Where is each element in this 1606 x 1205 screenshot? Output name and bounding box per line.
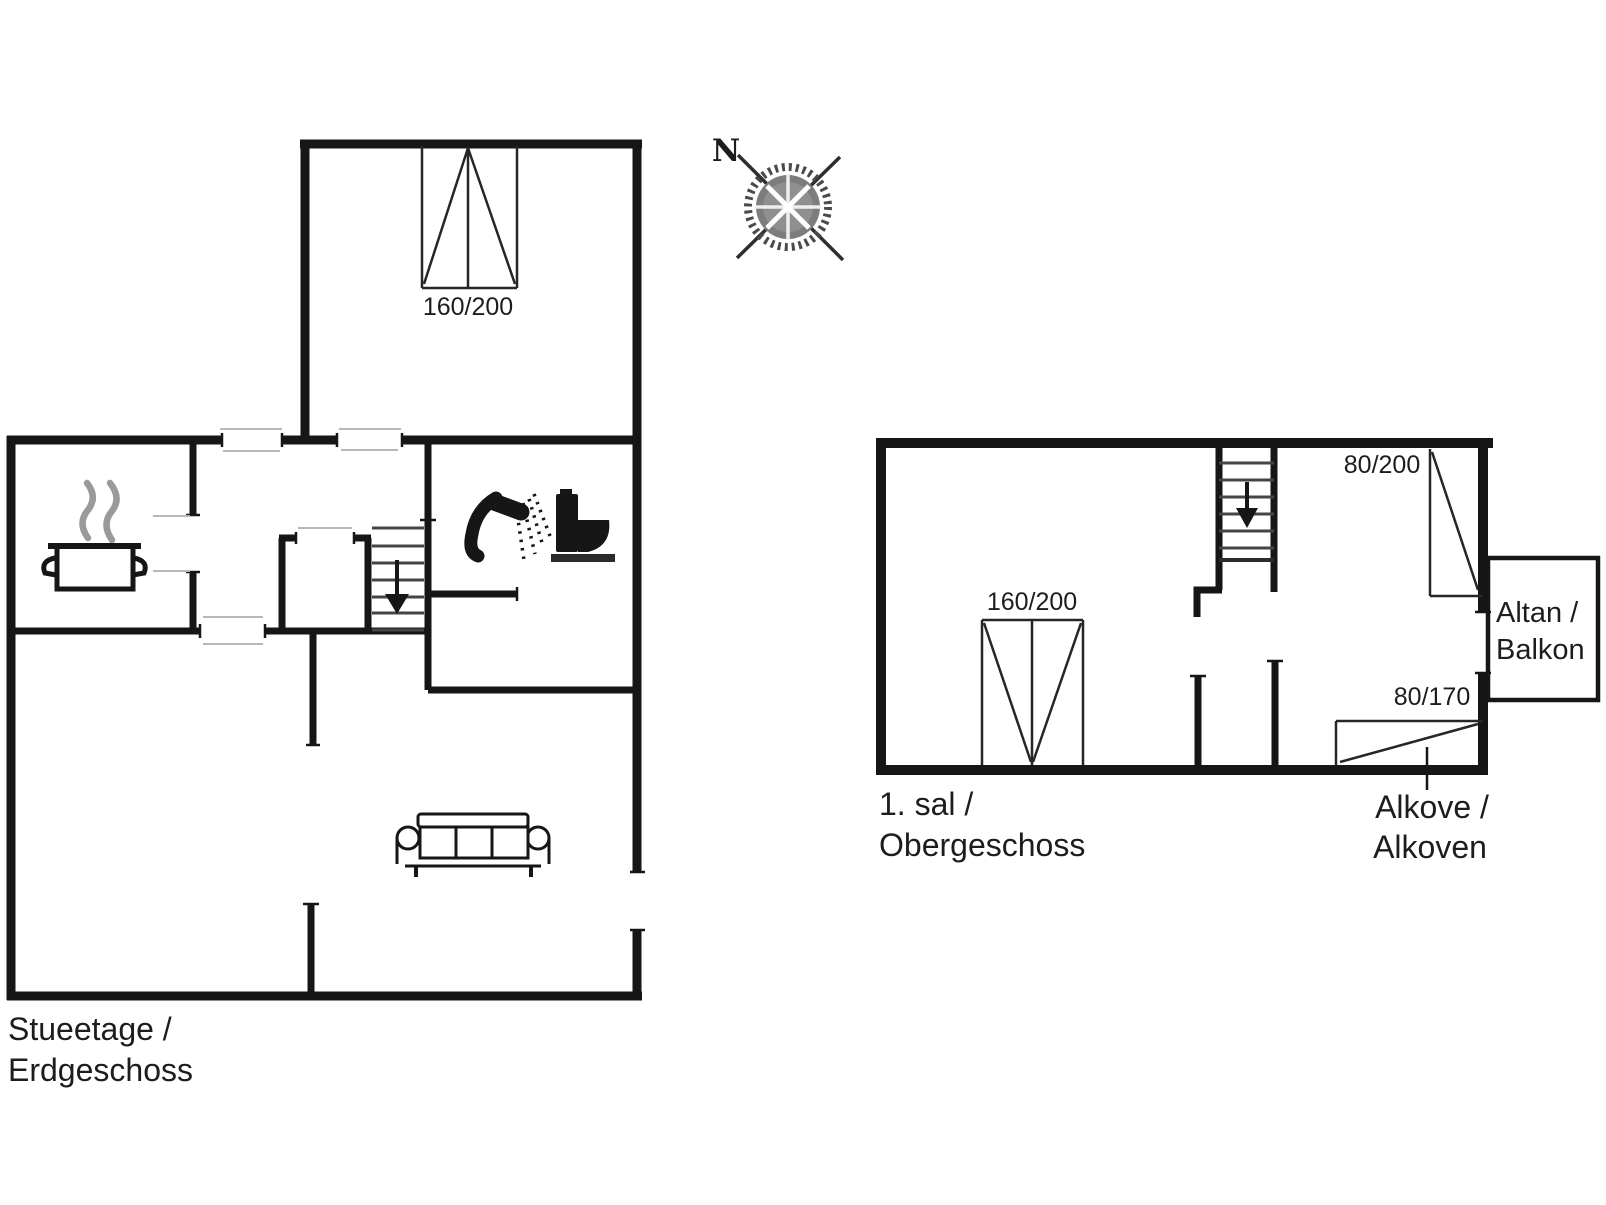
- ground-floor-label-line1: Stueetage /: [8, 1011, 172, 1047]
- window-symbol-alcove-80x170: [1336, 721, 1483, 765]
- first-floor-plan: 160/200 80/200 Altan / Balkon 80/170 Alk…: [876, 438, 1598, 865]
- ground-window-label: 160/200: [423, 293, 513, 321]
- ground-floor-plan: 160/200: [7, 140, 645, 1088]
- cooking-pot-icon: [44, 483, 146, 589]
- balcony: Altan / Balkon: [1488, 558, 1598, 700]
- first-floor-label-line2: Obergeschoss: [879, 827, 1085, 863]
- window-symbol-first-160x200: [982, 620, 1083, 765]
- staircase-ground: [372, 528, 424, 630]
- compass-north-label: N: [712, 133, 740, 169]
- compass-rose: N: [712, 133, 843, 260]
- first-window-left-label: 160/200: [987, 588, 1077, 616]
- alcove-label-line2: Alkoven: [1373, 829, 1487, 865]
- first-floor-outer-walls: [876, 438, 1493, 775]
- floorplan-page: N: [0, 0, 1606, 1205]
- staircase-first: [1197, 446, 1274, 617]
- window-symbol-first-80x200: [1430, 449, 1483, 596]
- sofa-icon: [397, 814, 549, 877]
- ground-floor-label-line2: Erdgeschoss: [8, 1052, 193, 1088]
- balcony-label-line2: Balkon: [1496, 634, 1585, 666]
- stairs-down-arrow-icon: [1236, 482, 1258, 528]
- balcony-label-line1: Altan /: [1496, 597, 1579, 629]
- first-floor-label-line1: 1. sal /: [879, 786, 973, 822]
- alcove-label-line1: Alkove /: [1375, 789, 1489, 825]
- shower-icon: [471, 494, 550, 560]
- stairs-down-arrow-icon: [385, 560, 409, 614]
- toilet-icon: [551, 489, 615, 562]
- floorplan-drawing: N: [0, 0, 1606, 1205]
- first-window-right-label: 80/200: [1344, 451, 1420, 479]
- window-symbol-ground-160x200: [422, 146, 517, 288]
- alcove-window-label: 80/170: [1394, 683, 1470, 711]
- closet-walls: [279, 528, 371, 631]
- interior-walls-first: [1190, 661, 1283, 770]
